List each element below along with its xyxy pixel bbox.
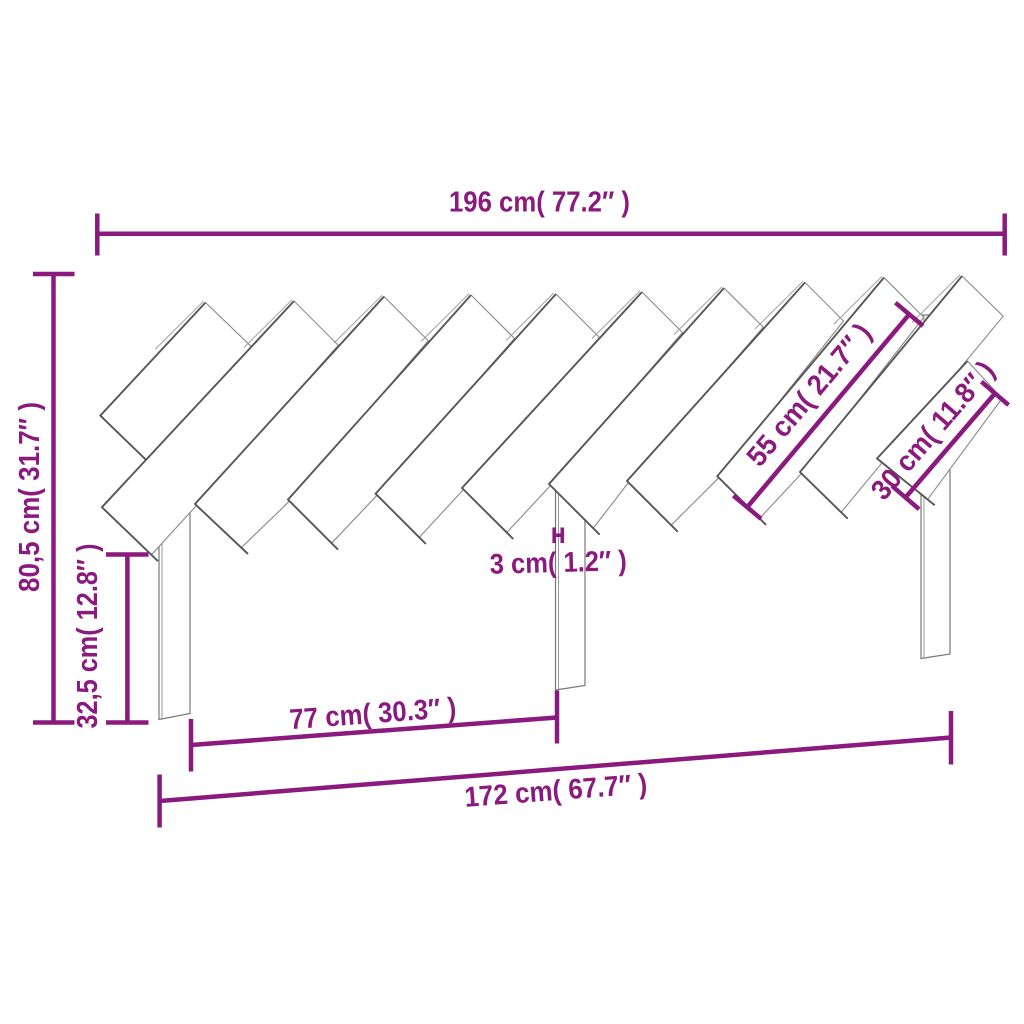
svg-text:80,5 cm( 31.7″ ): 80,5 cm( 31.7″ ) (14, 402, 46, 592)
svg-text:3 cm( 1.2″ ): 3 cm( 1.2″ ) (489, 545, 627, 581)
svg-text:196 cm( 77.2″ ): 196 cm( 77.2″ ) (449, 187, 630, 219)
svg-text:32,5 cm( 12.8″ ): 32,5 cm( 12.8″ ) (72, 544, 104, 729)
